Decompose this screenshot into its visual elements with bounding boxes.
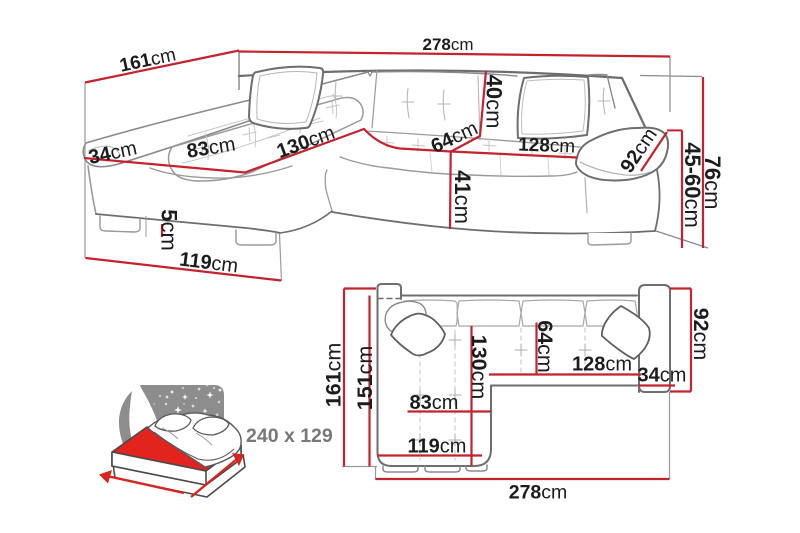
svg-text:76cm: 76cm — [700, 156, 725, 210]
svg-text:40cm: 40cm — [482, 75, 507, 129]
svg-text:92cm: 92cm — [689, 308, 713, 361]
svg-text:119cm: 119cm — [408, 436, 467, 458]
svg-text:64cm: 64cm — [533, 320, 557, 373]
svg-text:278cm: 278cm — [422, 35, 473, 54]
svg-text:5cm: 5cm — [157, 209, 182, 251]
svg-text:83cm: 83cm — [410, 392, 459, 414]
svg-text:278cm: 278cm — [509, 482, 568, 504]
svg-text:128cm: 128cm — [518, 135, 576, 158]
svg-text:34cm: 34cm — [638, 365, 687, 387]
svg-text:240 x 129: 240 x 129 — [246, 425, 333, 447]
svg-text:151cm: 151cm — [353, 346, 377, 411]
svg-text:128cm: 128cm — [572, 354, 632, 376]
svg-text:41cm: 41cm — [450, 170, 475, 224]
svg-text:161cm: 161cm — [322, 343, 346, 408]
svg-text:130cm: 130cm — [467, 335, 491, 400]
